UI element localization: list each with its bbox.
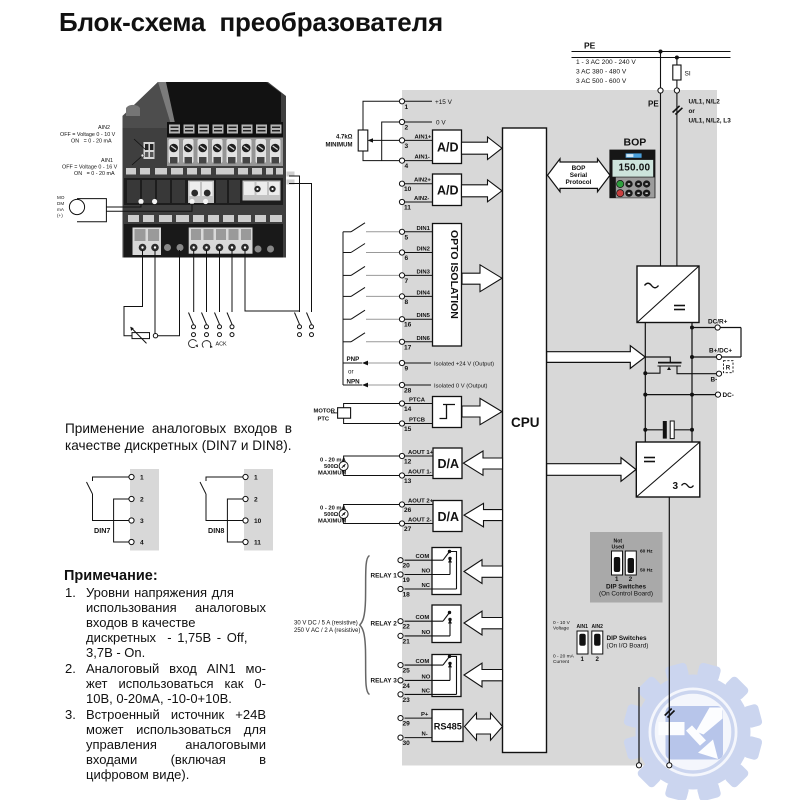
svg-text:Voltage: Voltage [553, 626, 569, 632]
svg-text:PE: PE [648, 100, 659, 109]
svg-text:PE: PE [584, 41, 596, 51]
svg-text:DIN3: DIN3 [417, 269, 431, 275]
svg-text:DIP Switches: DIP Switches [606, 584, 646, 591]
svg-text:15: 15 [404, 426, 412, 433]
svg-text:1: 1 [140, 475, 144, 482]
svg-text:U/L1, N/L2: U/L1, N/L2 [689, 99, 721, 106]
svg-text:18: 18 [403, 592, 411, 599]
svg-text:PTC: PTC [318, 417, 330, 423]
svg-text:PNP: PNP [347, 356, 360, 363]
svg-text:CPU: CPU [511, 415, 540, 430]
svg-text:RELAY 2: RELAY 2 [371, 621, 398, 628]
svg-text:19: 19 [403, 577, 411, 584]
svg-text:1: 1 [405, 104, 409, 111]
svg-text:13: 13 [404, 478, 412, 485]
svg-text:3 AC 500 - 600 V: 3 AC 500 - 600 V [576, 78, 627, 85]
svg-text:2: 2 [629, 576, 633, 583]
svg-text:0 - 20 mA: 0 - 20 mA [553, 654, 575, 660]
svg-text:23: 23 [403, 697, 411, 704]
svg-text:or: or [348, 369, 354, 376]
svg-text:OFF = Voltage 0 - 16 V: OFF = Voltage 0 - 16 V [62, 165, 118, 171]
svg-text:AOUT 2-: AOUT 2- [408, 518, 432, 524]
svg-text:Isolated 0 V (Output): Isolated 0 V (Output) [434, 383, 488, 389]
svg-text:DC/R+: DC/R+ [708, 319, 728, 326]
svg-text:AIN2-: AIN2- [414, 196, 429, 202]
svg-text:0 - 10 V: 0 - 10 V [553, 620, 571, 626]
svg-text:D/A: D/A [438, 510, 460, 524]
svg-text:7: 7 [405, 278, 409, 285]
svg-text:COM: COM [416, 615, 430, 621]
svg-text:1: 1 [581, 656, 585, 663]
svg-text:Protocol: Protocol [566, 179, 592, 186]
svg-text:17: 17 [404, 344, 412, 351]
svg-text:R: R [726, 365, 731, 372]
svg-text:250 V AC / 2 A (resistive): 250 V AC / 2 A (resistive) [294, 628, 360, 634]
svg-text:10: 10 [404, 186, 412, 193]
svg-text:12: 12 [404, 459, 412, 466]
svg-text:Used: Used [612, 545, 625, 551]
svg-text:27: 27 [404, 526, 412, 533]
svg-text:NO: NO [422, 630, 431, 636]
svg-text:20: 20 [403, 563, 411, 570]
svg-text:2: 2 [254, 497, 258, 504]
svg-text:0 - 20 mA: 0 - 20 mA [320, 457, 347, 463]
svg-text:NO: NO [422, 674, 431, 680]
svg-text:1 - 3 AC 200 - 240 V: 1 - 3 AC 200 - 240 V [576, 59, 636, 66]
svg-text:B-: B- [711, 377, 718, 384]
svg-text:1: 1 [254, 475, 258, 482]
svg-text:8: 8 [405, 299, 409, 306]
svg-text:DIP Switches: DIP Switches [607, 635, 647, 642]
svg-text:10: 10 [254, 518, 262, 525]
svg-text:60 Hz: 60 Hz [640, 549, 653, 555]
svg-text:2: 2 [140, 497, 144, 504]
svg-text:0 - 20 mA: 0 - 20 mA [320, 505, 347, 511]
svg-text:D/A: D/A [438, 457, 460, 471]
svg-text:ON = 0 - 20 mA: ON = 0 - 20 mA [74, 171, 115, 177]
svg-text:BOP: BOP [572, 165, 587, 172]
svg-text:BOP: BOP [624, 137, 647, 149]
svg-text:MINIMUM: MINIMUM [326, 143, 353, 149]
svg-text:5: 5 [405, 234, 409, 241]
svg-text:MAXIMUM: MAXIMUM [318, 518, 347, 524]
svg-text:29: 29 [403, 721, 411, 728]
svg-text:DIN4: DIN4 [417, 290, 431, 296]
svg-text:150.00: 150.00 [619, 162, 651, 173]
svg-text:28: 28 [404, 388, 412, 395]
svg-text:RS485: RS485 [434, 722, 462, 732]
svg-text:25: 25 [403, 668, 411, 675]
svg-text:AIN1-: AIN1- [415, 155, 430, 161]
svg-text:B+/DC+: B+/DC+ [709, 348, 732, 355]
svg-text:21: 21 [403, 638, 411, 645]
svg-text:+15 V: +15 V [435, 99, 453, 106]
svg-text:MO: MO [57, 195, 65, 200]
svg-text:MOTOR: MOTOR [314, 409, 336, 415]
svg-text:14: 14 [404, 406, 412, 413]
svg-text:AOUT 1-: AOUT 1- [408, 470, 432, 476]
svg-text:AIN1: AIN1 [577, 624, 589, 630]
svg-text:24: 24 [403, 683, 411, 690]
svg-text:SI: SI [685, 71, 691, 78]
svg-text:Serial: Serial [570, 172, 588, 179]
svg-text:COM: COM [416, 554, 430, 560]
svg-text:4: 4 [405, 163, 409, 170]
svg-text:AOUT 1+: AOUT 1+ [408, 450, 434, 456]
svg-text:500Ω: 500Ω [324, 464, 339, 470]
svg-text:3: 3 [673, 481, 679, 492]
svg-text:(On Control Board): (On Control Board) [599, 591, 653, 598]
svg-text:(On I/O Board): (On I/O Board) [607, 643, 649, 650]
svg-text:DIN6: DIN6 [417, 336, 431, 342]
svg-text:50 Hz: 50 Hz [640, 568, 653, 574]
svg-text:mA: mA [57, 207, 65, 212]
svg-text:AIN2+: AIN2+ [414, 178, 431, 184]
svg-text:(+): (+) [57, 213, 63, 218]
svg-text:DIN8: DIN8 [208, 526, 224, 535]
svg-text:11: 11 [254, 540, 261, 547]
svg-text:DIN1: DIN1 [417, 226, 431, 232]
svg-text:1: 1 [615, 576, 619, 583]
svg-text:2: 2 [596, 656, 600, 663]
svg-text:ACK: ACK [216, 342, 227, 348]
svg-text:or: or [689, 108, 696, 115]
svg-text:A/D: A/D [437, 184, 459, 198]
svg-text:PTCA: PTCA [409, 398, 426, 404]
svg-text:DIN2: DIN2 [417, 247, 431, 253]
svg-text:OFF = Voltage 0 - 10 V: OFF = Voltage 0 - 10 V [60, 132, 116, 138]
svg-text:DIN5: DIN5 [417, 313, 431, 319]
svg-text:MAXIMUM: MAXIMUM [318, 470, 347, 476]
svg-text:9: 9 [405, 366, 409, 373]
svg-text:P+: P+ [421, 712, 429, 718]
svg-text:6: 6 [405, 255, 409, 262]
svg-text:16: 16 [404, 322, 412, 329]
svg-text:0 V: 0 V [436, 120, 446, 127]
svg-text:DC-: DC- [723, 392, 734, 399]
svg-text:RELAY 3: RELAY 3 [371, 678, 398, 685]
svg-text:RELAY 1: RELAY 1 [371, 573, 398, 580]
svg-text:N-: N- [422, 732, 428, 738]
svg-text:26: 26 [404, 507, 412, 514]
svg-text:4.7kΩ: 4.7kΩ [336, 135, 353, 141]
svg-text:AIN2: AIN2 [592, 624, 604, 630]
svg-text:3: 3 [405, 143, 409, 150]
svg-text:AIN2: AIN2 [98, 125, 110, 131]
svg-text:30 V DC / 5 A (resistive): 30 V DC / 5 A (resistive) [294, 621, 358, 627]
svg-text:OPTO ISOLATION: OPTO ISOLATION [448, 230, 460, 319]
svg-text:NC: NC [422, 583, 431, 589]
svg-text:NC: NC [422, 688, 431, 694]
svg-text:30: 30 [403, 740, 411, 747]
svg-text:AOUT 2+: AOUT 2+ [408, 499, 434, 505]
svg-text:A/D: A/D [437, 141, 459, 155]
svg-text:PTCB: PTCB [409, 418, 425, 424]
svg-text:DM: DM [57, 201, 64, 206]
svg-text:U/L1, N/L2, L3: U/L1, N/L2, L3 [689, 118, 732, 125]
svg-text:500Ω: 500Ω [324, 512, 339, 518]
svg-text:COM: COM [416, 659, 430, 665]
svg-text:4: 4 [140, 540, 144, 547]
svg-text:ON = 0 - 20 mA: ON = 0 - 20 mA [71, 139, 112, 145]
svg-text:AIN1+: AIN1+ [415, 134, 432, 140]
svg-text:3 AC 380 - 480 V: 3 AC 380 - 480 V [576, 69, 627, 76]
svg-text:3: 3 [140, 518, 144, 525]
svg-text:Current: Current [553, 659, 570, 665]
svg-text:DIN7: DIN7 [94, 526, 110, 535]
svg-text:AIN1: AIN1 [101, 158, 113, 164]
svg-text:Isolated +24 V (Output): Isolated +24 V (Output) [434, 361, 494, 367]
svg-text:22: 22 [403, 624, 411, 631]
svg-text:2: 2 [405, 125, 409, 132]
svg-text:NO: NO [422, 569, 431, 575]
svg-text:11: 11 [404, 205, 411, 212]
